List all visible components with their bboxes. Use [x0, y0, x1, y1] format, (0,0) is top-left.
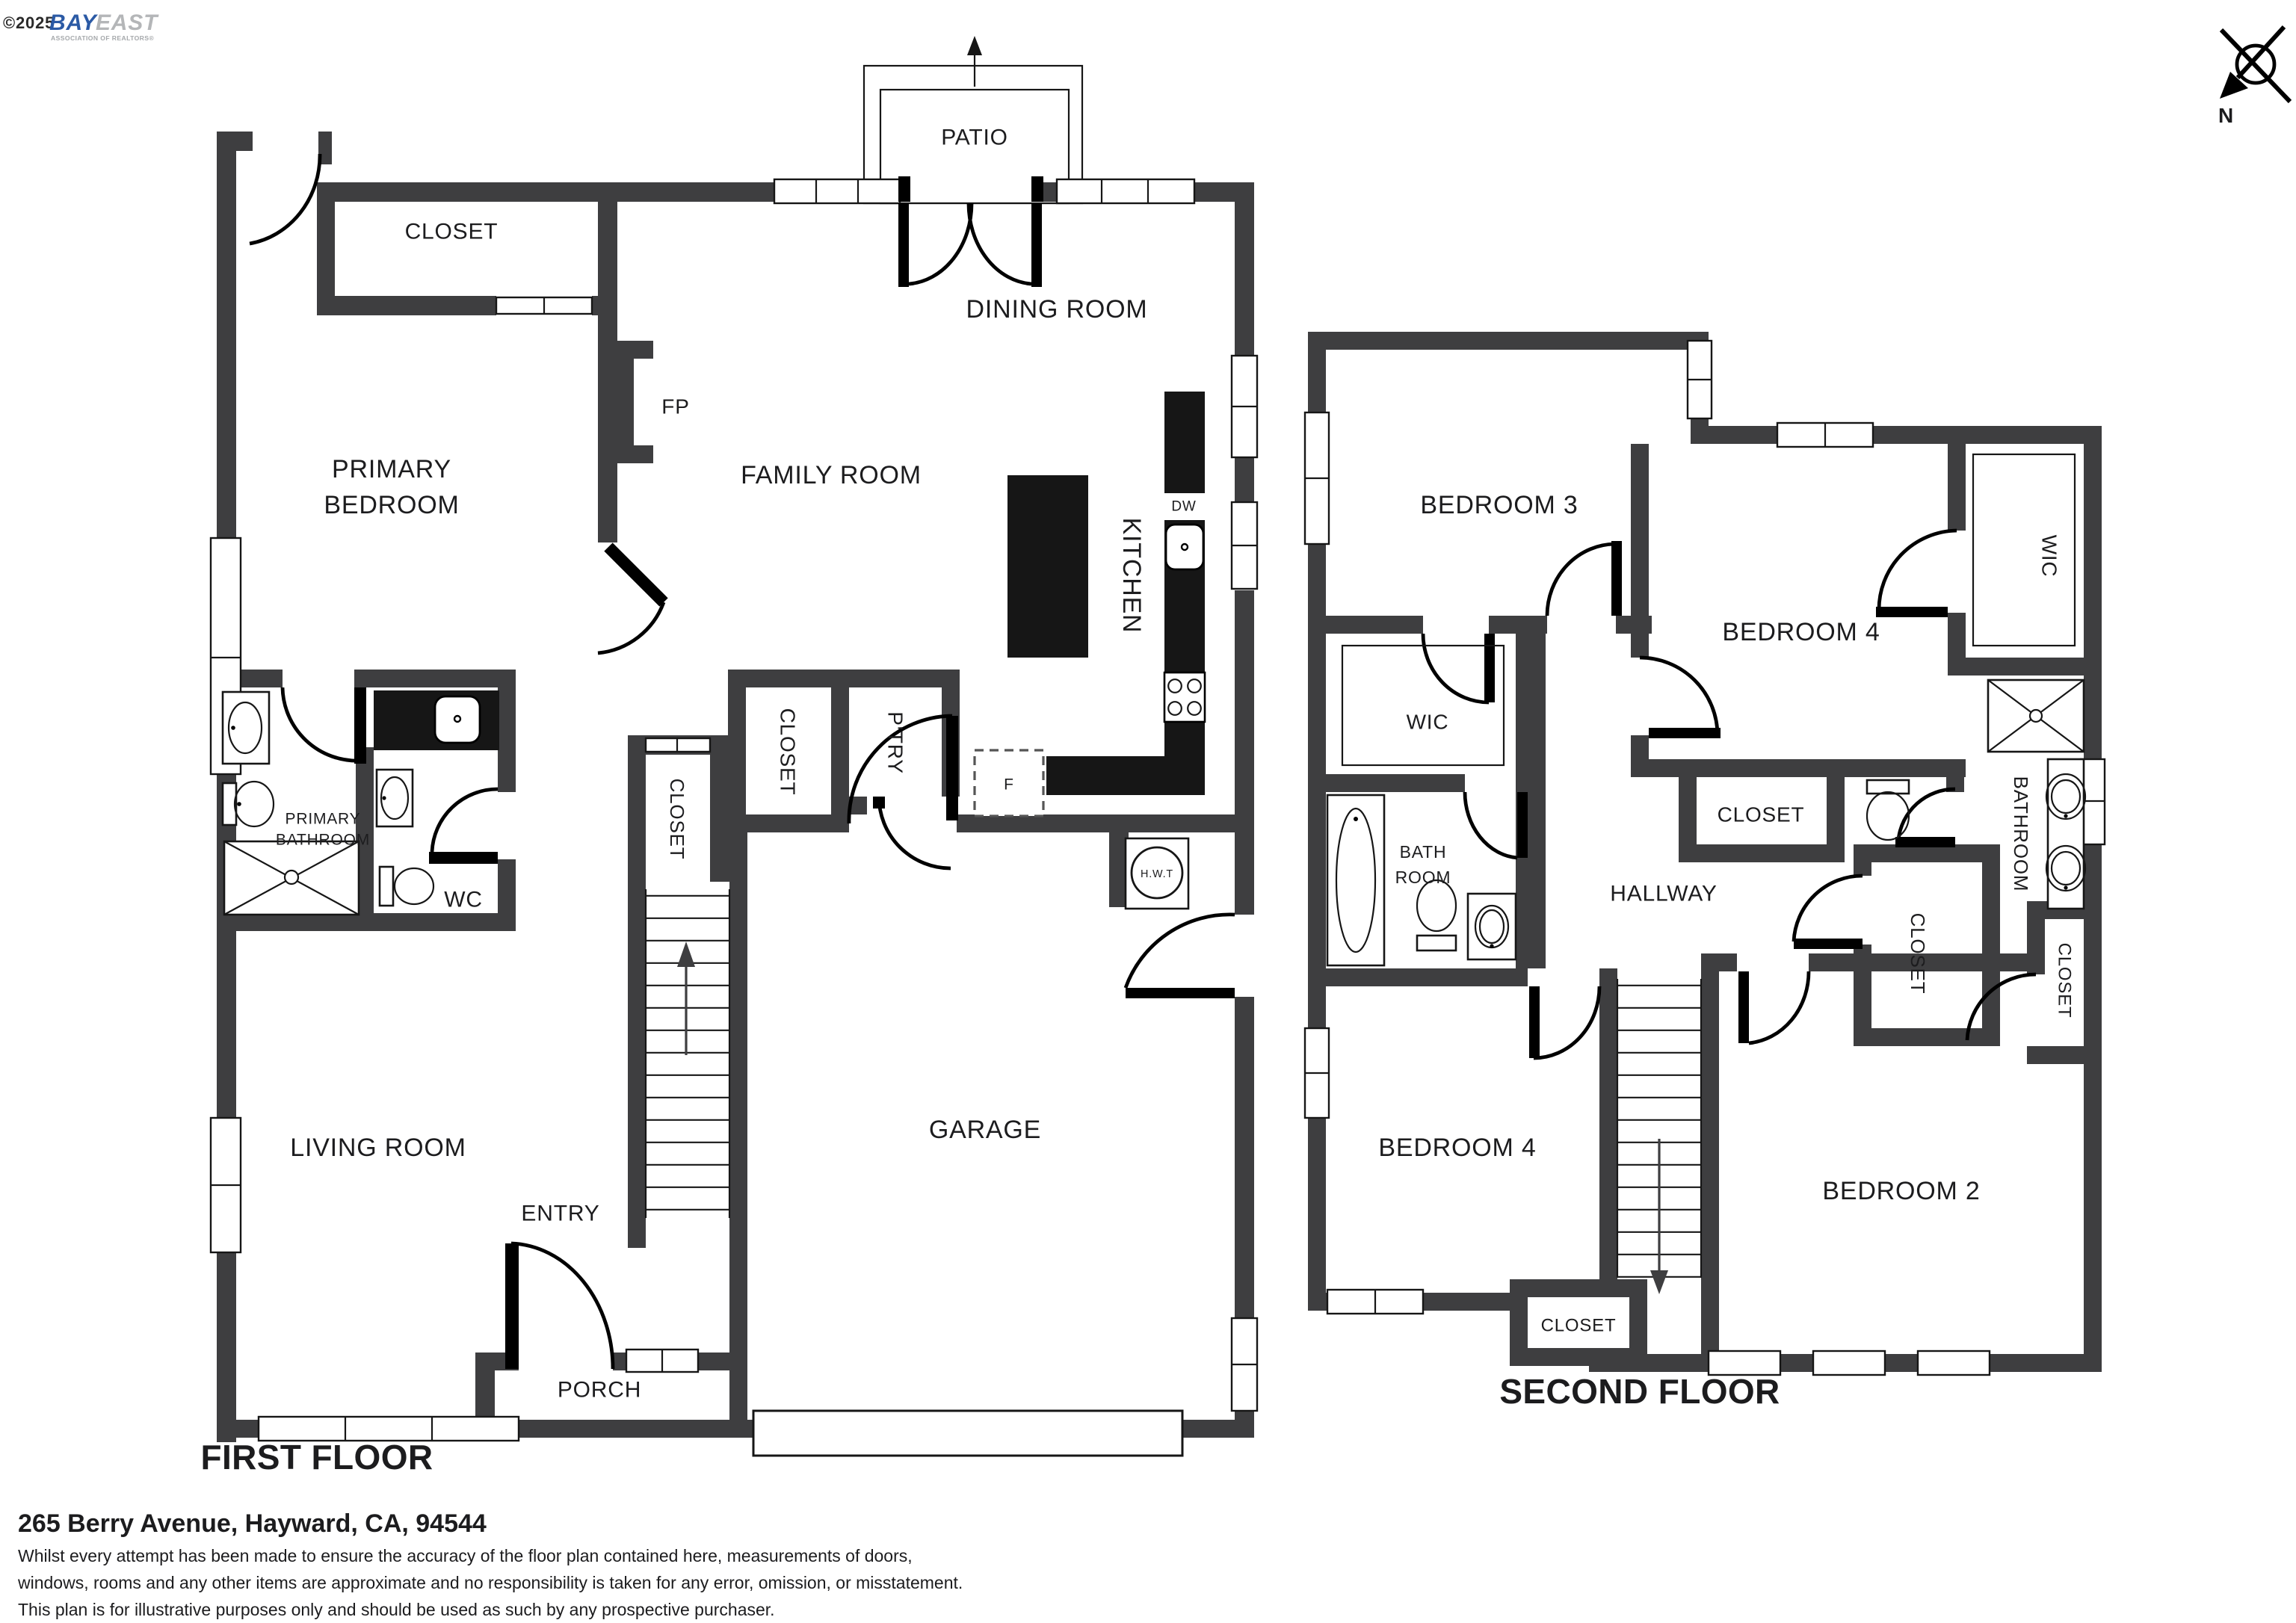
label-dishwasher: DW: [1171, 499, 1196, 515]
patio-deck: [864, 36, 1082, 203]
logo-tagline: ASSOCIATION OF REALTORS®: [51, 34, 154, 42]
understair-closet-door: [646, 738, 710, 752]
label-closet-primary: CLOSET: [405, 220, 499, 244]
label-wic-right: WIC: [2038, 535, 2061, 578]
disclaimer-line-3: This plan is for illustrative purposes o…: [18, 1600, 775, 1619]
sink-icon: [1166, 525, 1203, 569]
label-bedroom4-bottom: BEDROOM 4: [1378, 1134, 1536, 1162]
logo-east: EAST: [96, 10, 159, 35]
compass-icon: N: [2218, 27, 2290, 127]
label-pantry: P'TRY: [884, 711, 907, 774]
double-sink-icon: [2046, 759, 2085, 909]
floorplan-page: ©2025 BAY EAST ASSOCIATION OF REALTORS® …: [0, 0, 2296, 1623]
staircase-first-floor: [646, 889, 729, 1218]
second-floor-title: SECOND FLOOR: [1499, 1372, 1780, 1411]
toilet-icon-hallbath: [1417, 880, 1456, 950]
wc-toilet-icon: [380, 867, 433, 906]
footer: 265 Berry Avenue, Hayward, CA, 94544 Whi…: [17, 1509, 963, 1619]
label-primary-bath-1: PRIMARY: [286, 811, 361, 828]
label-closet-top: CLOSET: [1718, 803, 1805, 826]
shower-icon-2f: [1988, 680, 2084, 752]
disclaimer-line-1: Whilst every attempt has been made to en…: [18, 1546, 913, 1565]
compass-north-label: N: [2218, 104, 2234, 127]
label-primary-bedroom-2: BEDROOM: [324, 491, 459, 519]
label-primary-bedroom-1: PRIMARY: [332, 455, 451, 483]
label-kitchen: KITCHEN: [1117, 518, 1146, 634]
label-wc: WC: [444, 888, 483, 912]
label-water-heater: H.W.T: [1141, 868, 1173, 880]
toilet-icon: [223, 782, 274, 826]
stove-icon: [1164, 673, 1205, 722]
label-fridge: F: [1004, 776, 1014, 794]
label-bedroom2: BEDROOM 2: [1822, 1177, 1980, 1205]
label-patio: PATIO: [941, 126, 1008, 150]
label-closet-far-right: CLOSET: [2055, 943, 2075, 1018]
second-floor: BEDROOM 3 BEDROOM 4 WIC WIC CLOSET BATH …: [1305, 332, 2105, 1411]
label-closet-stairs: CLOSET: [666, 779, 688, 860]
label-primary-bath-2: BATHROOM: [276, 832, 370, 849]
label-porch: PORCH: [558, 1378, 641, 1403]
pedestal-sink-icon: [223, 692, 269, 764]
label-closet-mid: CLOSET: [1907, 913, 1929, 995]
label-bathroom-main: BATHROOM: [2010, 776, 2032, 892]
label-family-room: FAMILY ROOM: [741, 461, 922, 489]
label-closet-bottom: CLOSET: [1541, 1316, 1617, 1336]
vanity-sink-icon: [435, 696, 480, 743]
first-floor-title: FIRST FLOOR: [200, 1438, 433, 1477]
address: 265 Berry Avenue, Hayward, CA, 94544: [18, 1509, 487, 1538]
label-wic-left: WIC: [1407, 711, 1449, 734]
disclaimer-line-2: windows, rooms and any other items are a…: [17, 1573, 963, 1592]
toilet-icon-nook: [1867, 780, 1909, 840]
sink-icon-hallbath: [1468, 894, 1516, 959]
kitchen-island: [1007, 475, 1088, 658]
label-dining-room: DINING ROOM: [966, 295, 1147, 324]
first-floor: PATIO CLOSET DINING ROOM PRIMARY BEDROOM…: [200, 36, 1257, 1477]
label-bedroom3: BEDROOM 3: [1420, 491, 1578, 519]
shower-icon: [224, 841, 359, 915]
label-bathroom-hall-1: BATH: [1400, 842, 1447, 862]
label-living-room: LIVING ROOM: [290, 1134, 466, 1162]
label-hallway: HALLWAY: [1610, 882, 1717, 906]
logo-bay: BAY: [49, 10, 99, 35]
label-entry: ENTRY: [521, 1202, 599, 1226]
label-fireplace: FP: [661, 395, 689, 418]
logo-copyright: ©2025: [3, 13, 55, 32]
staircase-second-floor: [1617, 979, 1701, 1294]
garage-door: [753, 1411, 1182, 1456]
floorplan-svg: ©2025 BAY EAST ASSOCIATION OF REALTORS® …: [0, 0, 2296, 1623]
bathtub-icon: [1327, 795, 1384, 965]
logo: ©2025 BAY EAST ASSOCIATION OF REALTORS®: [3, 10, 159, 42]
label-garage: GARAGE: [929, 1116, 1041, 1144]
closet-bifold-door: [496, 297, 592, 314]
label-closet-hall: CLOSET: [777, 708, 800, 796]
label-bathroom-hall-2: ROOM: [1395, 868, 1451, 887]
wic-left-shelf: [1342, 646, 1504, 765]
label-bedroom4-top: BEDROOM 4: [1722, 618, 1880, 646]
wc-sink-icon: [377, 770, 413, 826]
